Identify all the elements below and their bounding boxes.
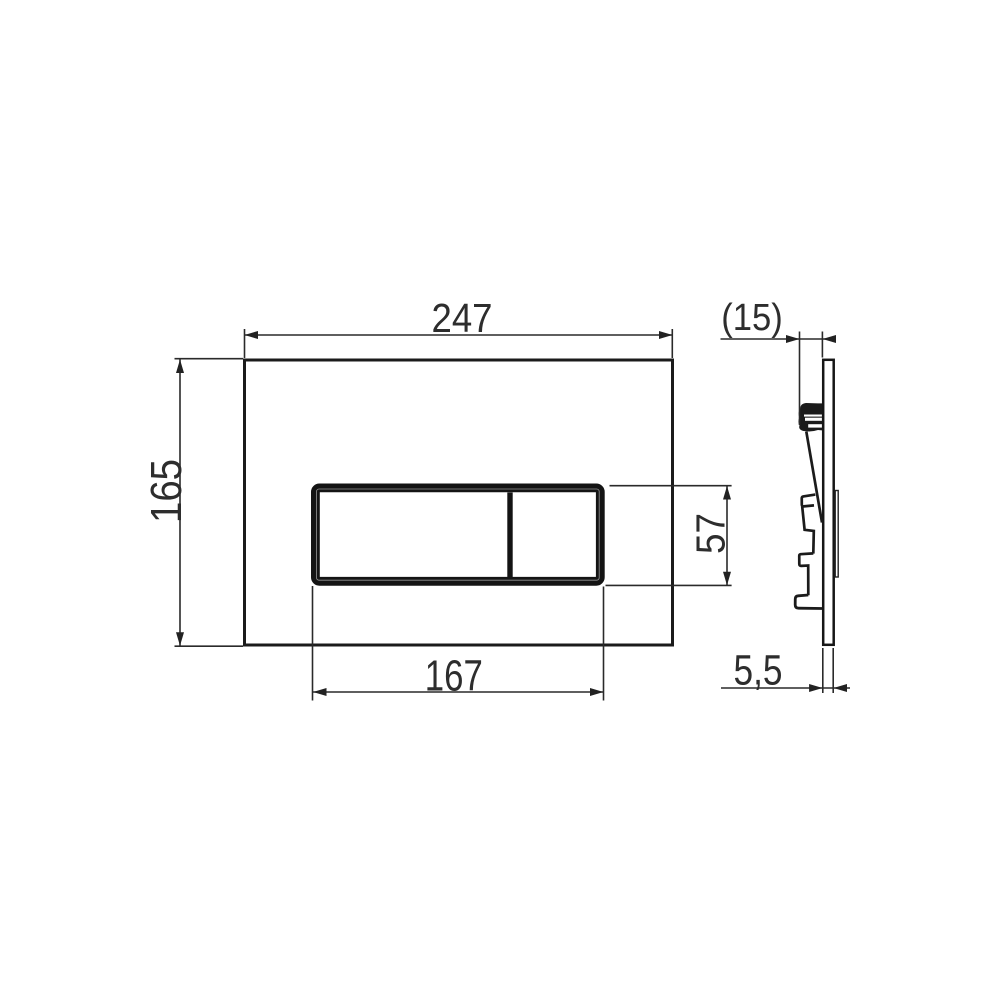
svg-text:57: 57 <box>688 513 734 554</box>
svg-text:(15): (15) <box>721 297 783 339</box>
svg-text:167: 167 <box>425 652 483 701</box>
svg-text:165: 165 <box>142 459 191 523</box>
svg-text:5,5: 5,5 <box>734 647 783 695</box>
svg-text:247: 247 <box>432 295 493 341</box>
